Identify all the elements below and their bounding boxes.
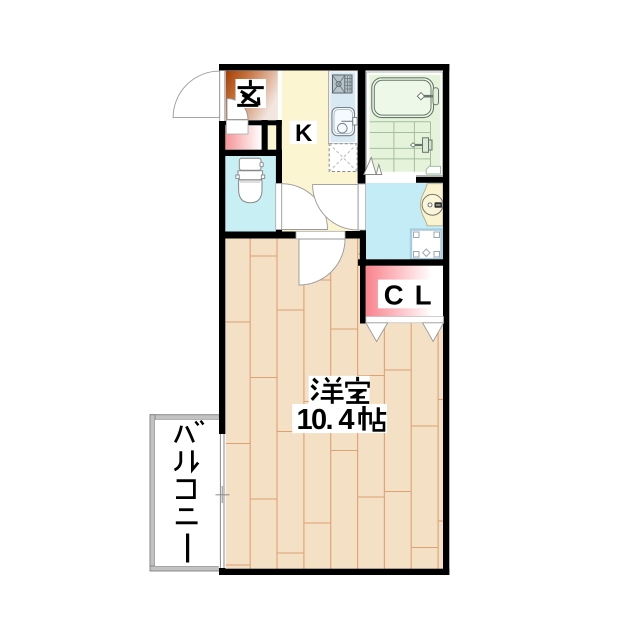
svg-text:10. 4: 10. 4 xyxy=(297,404,355,436)
svg-text:K: K xyxy=(295,120,313,147)
svg-text:C L: C L xyxy=(384,279,432,310)
